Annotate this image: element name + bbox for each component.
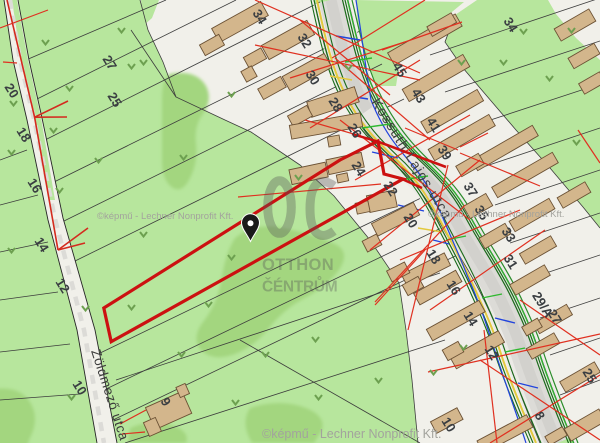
svg-text:©képmű - Lechner Nonprofit Kft: ©képmű - Lechner Nonprofit Kft. bbox=[262, 427, 441, 441]
svg-text:OTTHON: OTTHON bbox=[262, 256, 334, 274]
svg-text:ČÉNTRŮM: ČÉNTRŮM bbox=[262, 277, 337, 296]
svg-text:©képmű - Lechner Nonprofit Kft: ©képmű - Lechner Nonprofit Kft. bbox=[97, 211, 233, 222]
svg-text:©képmű - Lechner Nonprofit Kft: ©képmű - Lechner Nonprofit Kft. bbox=[428, 209, 564, 220]
